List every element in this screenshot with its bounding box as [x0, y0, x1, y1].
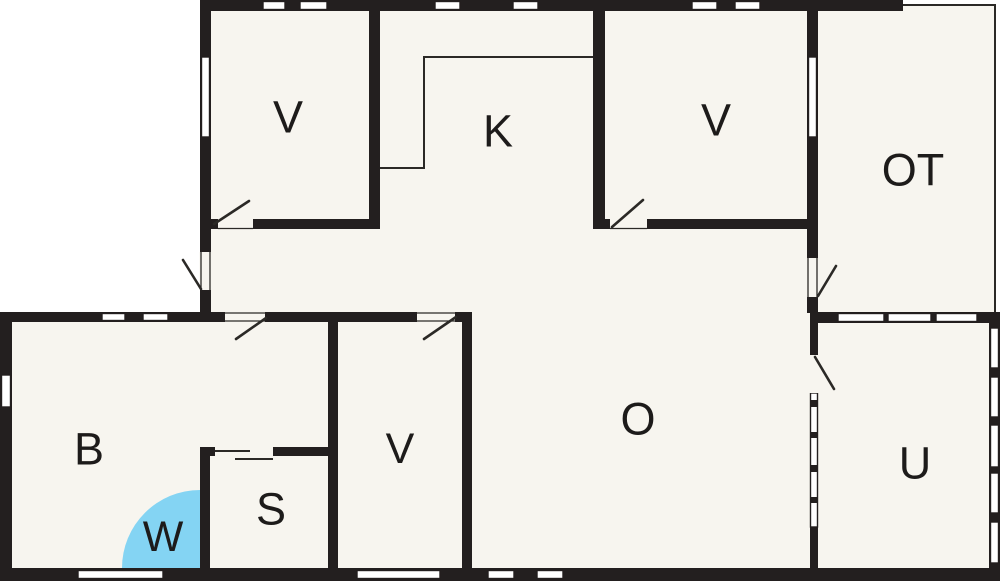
room-label-o: O — [620, 394, 655, 445]
window-top-6 — [735, 2, 760, 10]
window-bottom-b — [78, 571, 163, 579]
partition-dash-2 — [810, 432, 818, 438]
window-u-right-3 — [991, 425, 999, 467]
partition-dash-3 — [810, 465, 818, 472]
room-label-v2: V — [701, 95, 731, 146]
wall-v1-k — [369, 0, 380, 229]
room-upper-floor — [200, 0, 903, 323]
window-u-right-5 — [991, 522, 999, 563]
wall-w-s — [200, 447, 210, 568]
room-label-b: B — [74, 424, 104, 475]
window-top-3 — [435, 2, 460, 10]
glass-partition-o-u — [811, 393, 818, 527]
window-b-top-1 — [102, 314, 125, 321]
wall-left-lower-exterior — [0, 312, 12, 581]
window-left-upper — [202, 57, 210, 137]
floorplan-drawing: V K V OT B W S V O U — [0, 0, 1000, 581]
room-label-u: U — [899, 438, 932, 489]
room-label-w: W — [143, 513, 184, 561]
window-u-top-2 — [888, 314, 931, 322]
window-left-lower — [2, 375, 11, 407]
window-b-top-2 — [143, 314, 168, 321]
window-v2-ot — [809, 57, 817, 137]
room-label-v3: V — [386, 425, 415, 473]
wall-bs-v3 — [328, 312, 338, 568]
window-u-right-2 — [991, 377, 999, 417]
wall-v3-o — [462, 312, 472, 568]
room-label-k: K — [483, 106, 513, 157]
window-bottom-v3 — [357, 571, 440, 579]
window-u-top-1 — [838, 314, 884, 322]
room-label-ot: OT — [882, 145, 945, 196]
window-top-5 — [692, 2, 717, 10]
window-top-2 — [300, 2, 327, 10]
window-u-top-3 — [936, 314, 977, 322]
partition-dash-4 — [810, 497, 818, 503]
floorplan-canvas: V K V OT B W S V O U — [0, 0, 1000, 581]
room-label-s: S — [256, 484, 286, 535]
wall-k-v2 — [593, 0, 605, 229]
room-label-v1: V — [273, 92, 303, 143]
door-swing-entry — [183, 260, 201, 289]
window-u-right-1 — [991, 328, 999, 368]
window-bottom-o2 — [537, 571, 563, 579]
window-top-4 — [513, 2, 538, 10]
window-bottom-o1 — [488, 571, 514, 579]
window-u-right-4 — [991, 473, 999, 513]
window-top-1 — [263, 2, 285, 10]
partition-dash-1 — [810, 400, 818, 407]
floor-areas — [0, 0, 1000, 581]
